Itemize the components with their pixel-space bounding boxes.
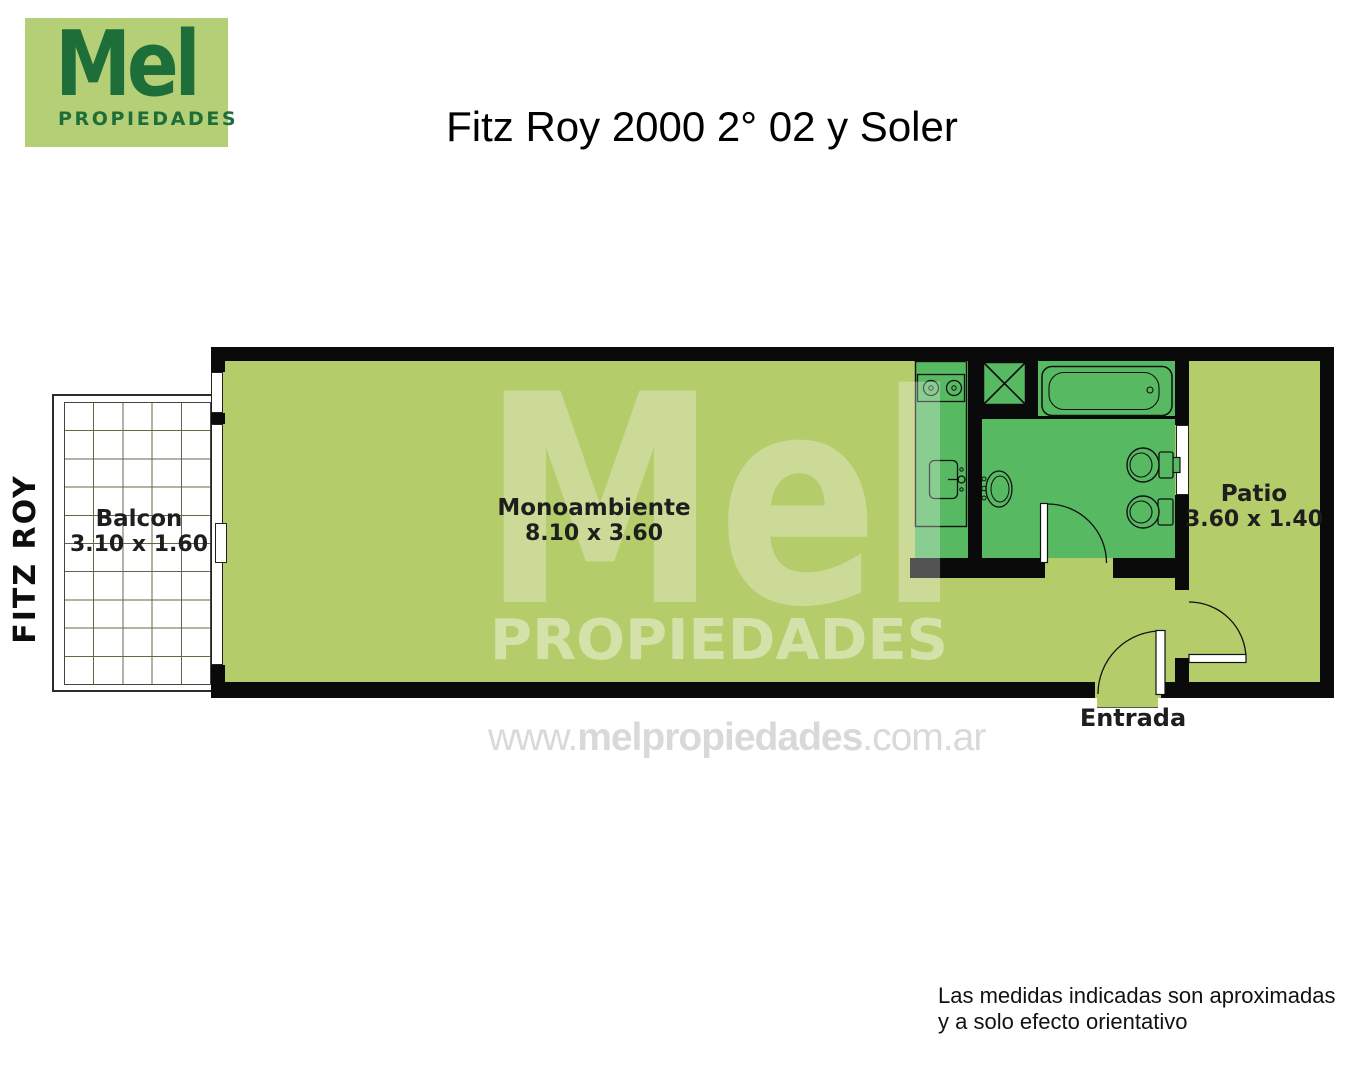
logo-tagline-text: PROPIEDADES [58,108,238,130]
wall-block-bottom-left [910,558,1045,578]
street-name-label: FITZ ROY [8,474,42,644]
window-slider-pane [215,523,227,563]
window-balcony-upper [211,372,223,413]
wall-left-block-top [211,359,225,372]
balcony-dims-label: 3.10 x 1.60 [70,532,208,557]
page-title: Fitz Roy 2000 2° 02 y Soler [352,103,1052,151]
wall-bottom-right [1161,682,1334,698]
disclaimer-line-1: Las medidas indicadas son aproximadas [938,983,1335,1009]
wall-bottom-left [211,682,1095,698]
floor-kitchen [915,361,968,558]
floor-bathroom [982,361,1175,558]
patio-dims-label: 3.60 x 1.40 [1185,507,1323,532]
patio-name-label: Patio [1221,481,1287,507]
studio-name-label: Monoambiente [497,495,690,521]
wall-shaft-bottom [982,405,1038,419]
website-www: www. [488,716,577,759]
disclaimer-line-2: y a solo efecto orientativo [938,1009,1335,1035]
agency-logo: Mel PROPIEDADES [25,18,228,147]
disclaimer-text: Las medidas indicadas son aproximadas y … [938,983,1335,1035]
website-tld: .com.ar [862,716,985,759]
wall-left-block-mid [211,413,225,424]
balcony-name-label: Balcon [96,506,183,532]
wall-block-bottom-right [1113,558,1189,578]
wall-patio-lower [1175,658,1189,682]
wall-top [211,347,1334,361]
website-domain: melpropiedades [577,716,862,759]
logo-brand-text: Mel [55,20,196,110]
wall-patio-upper [1175,361,1189,425]
window-bathroom-patio [1176,425,1189,495]
wall-kitchen-bath [968,361,982,558]
entrance-label: Entrada [1080,704,1186,732]
website-watermark: www.melpropiedades.com.ar [488,716,985,760]
studio-dims-label: 8.10 x 3.60 [525,521,663,546]
wall-left-block-bottom [211,665,225,682]
